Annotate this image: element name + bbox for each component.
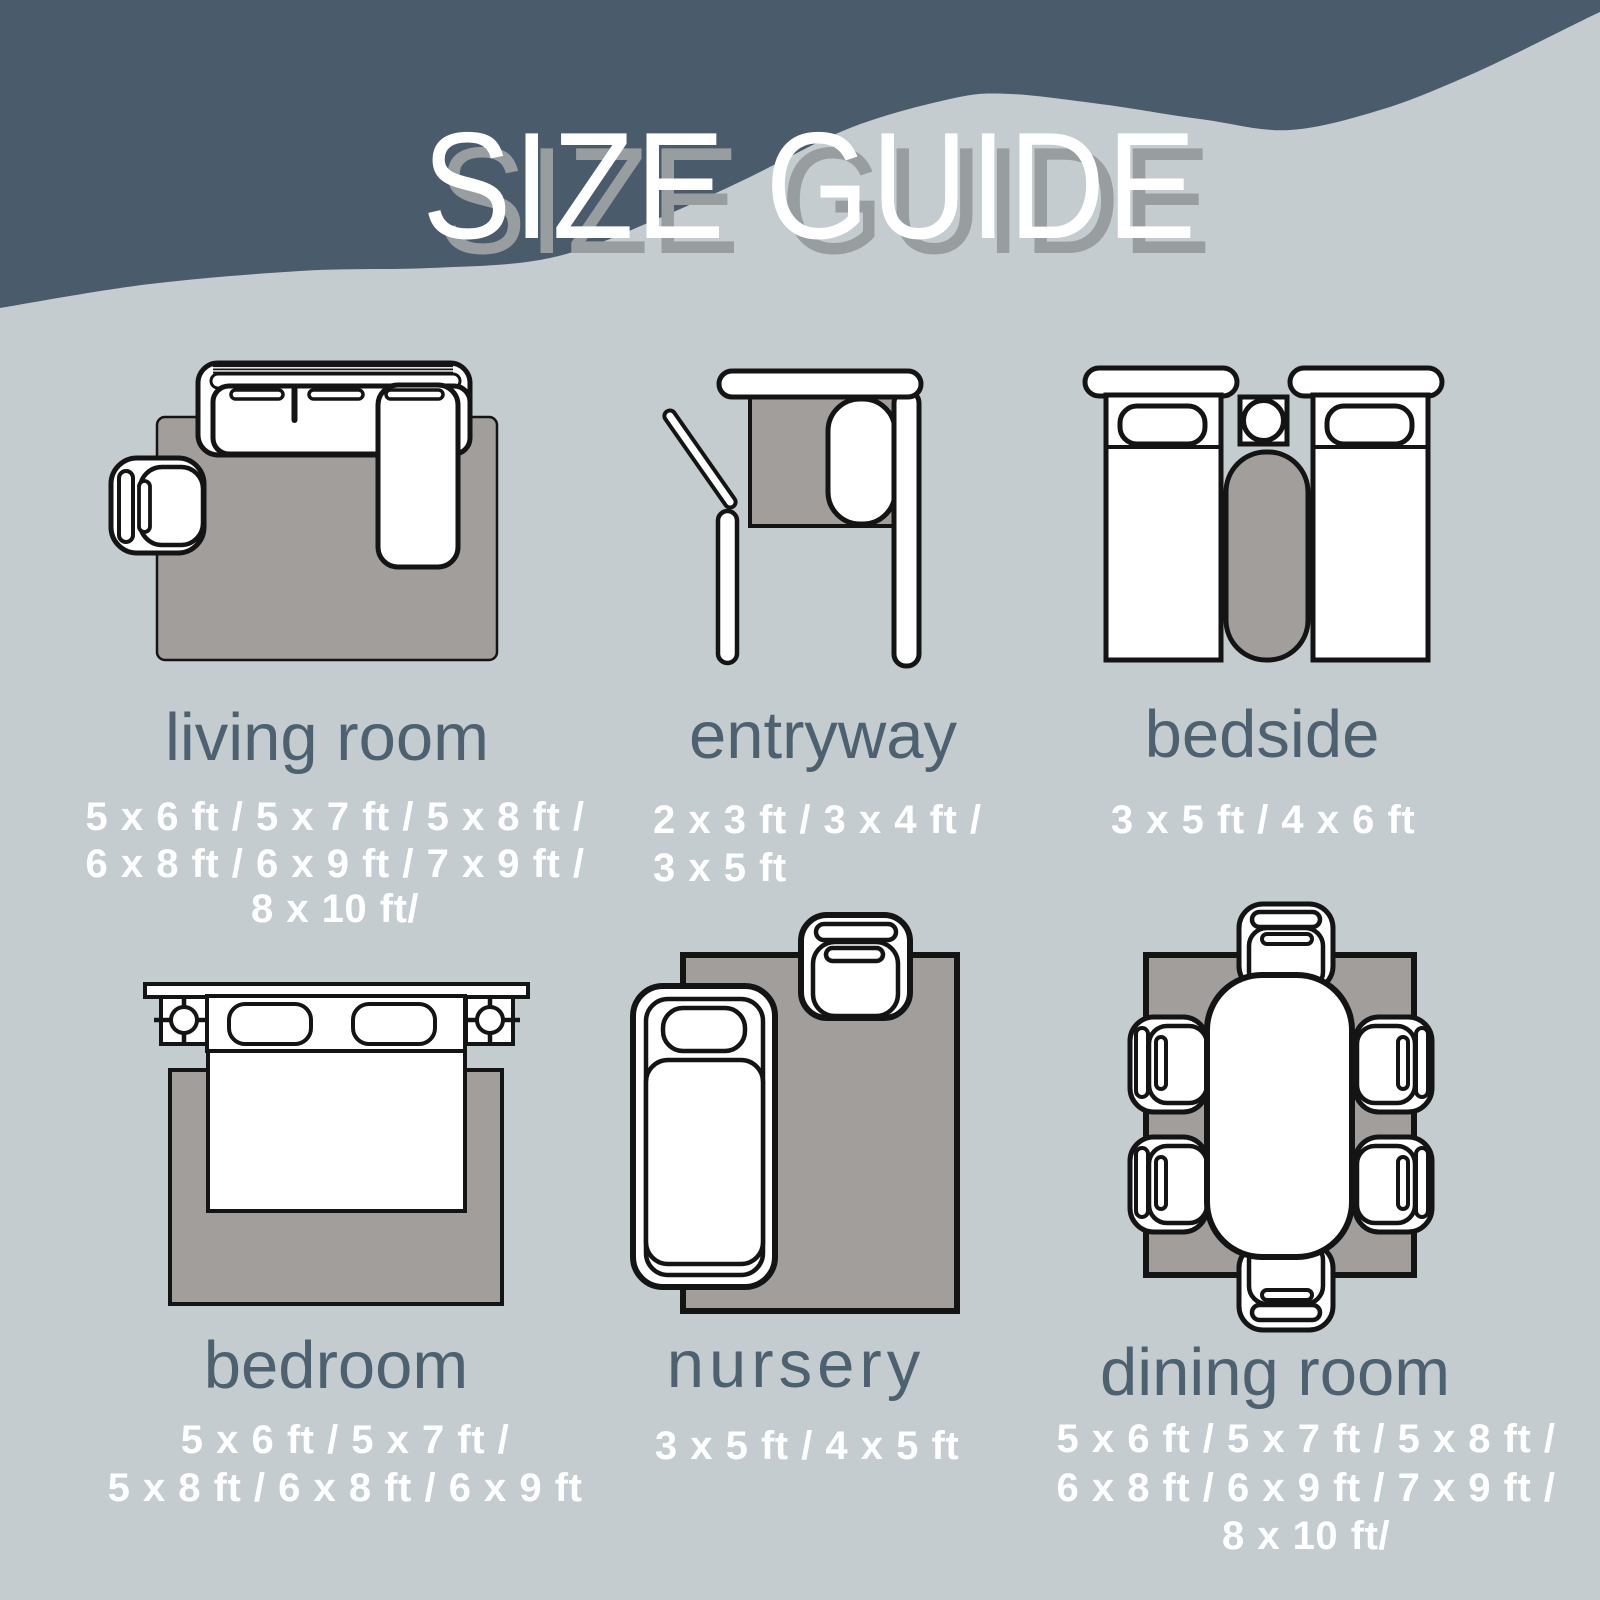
svg-text:6 x 8 ft / 6 x 9 ft / 7 x 9 ft: 6 x 8 ft / 6 x 9 ft / 7 x 9 ft / xyxy=(1056,1466,1555,1510)
svg-text:nursery: nursery xyxy=(667,1327,925,1402)
svg-text:3 x 5 ft / 4 x 6 ft: 3 x 5 ft / 4 x 6 ft xyxy=(1111,798,1415,842)
svg-text:5 x 6 ft / 5 x 7 ft /: 5 x 6 ft / 5 x 7 ft / xyxy=(181,1418,510,1462)
svg-text:5 x 6 ft / 5 x 7 ft / 5 x 8 ft: 5 x 6 ft / 5 x 7 ft / 5 x 8 ft / xyxy=(85,795,584,839)
svg-text:living room: living room xyxy=(165,700,489,775)
svg-text:5 x 6 ft / 5 x 7 ft / 5 x 8 ft: 5 x 6 ft / 5 x 7 ft / 5 x 8 ft / xyxy=(1056,1417,1555,1461)
svg-text:entryway: entryway xyxy=(689,698,958,773)
svg-text:bedroom: bedroom xyxy=(204,1328,468,1403)
svg-text:bedside: bedside xyxy=(1145,697,1380,772)
svg-text:SIZE GUIDE: SIZE GUIDE xyxy=(422,101,1198,271)
svg-text:5 x 8 ft / 6 x 8 ft / 6 x 9 ft: 5 x 8 ft / 6 x 8 ft / 6 x 9 ft xyxy=(108,1466,583,1510)
svg-text:2 x 3 ft / 3 x 4 ft /: 2 x 3 ft / 3 x 4 ft / xyxy=(653,798,982,842)
svg-text:3 x 5 ft: 3 x 5 ft xyxy=(653,846,787,890)
svg-text:8 x 10 ft/: 8 x 10 ft/ xyxy=(251,887,419,931)
svg-text:3 x 5 ft / 4 x 5 ft: 3 x 5 ft / 4 x 5 ft xyxy=(655,1424,959,1468)
svg-text:dining room: dining room xyxy=(1100,1335,1450,1410)
svg-text:8 x 10 ft/: 8 x 10 ft/ xyxy=(1222,1514,1390,1558)
svg-text:6 x 8 ft / 6 x 9 ft / 7 x 9 ft: 6 x 8 ft / 6 x 9 ft / 7 x 9 ft / xyxy=(85,842,584,886)
